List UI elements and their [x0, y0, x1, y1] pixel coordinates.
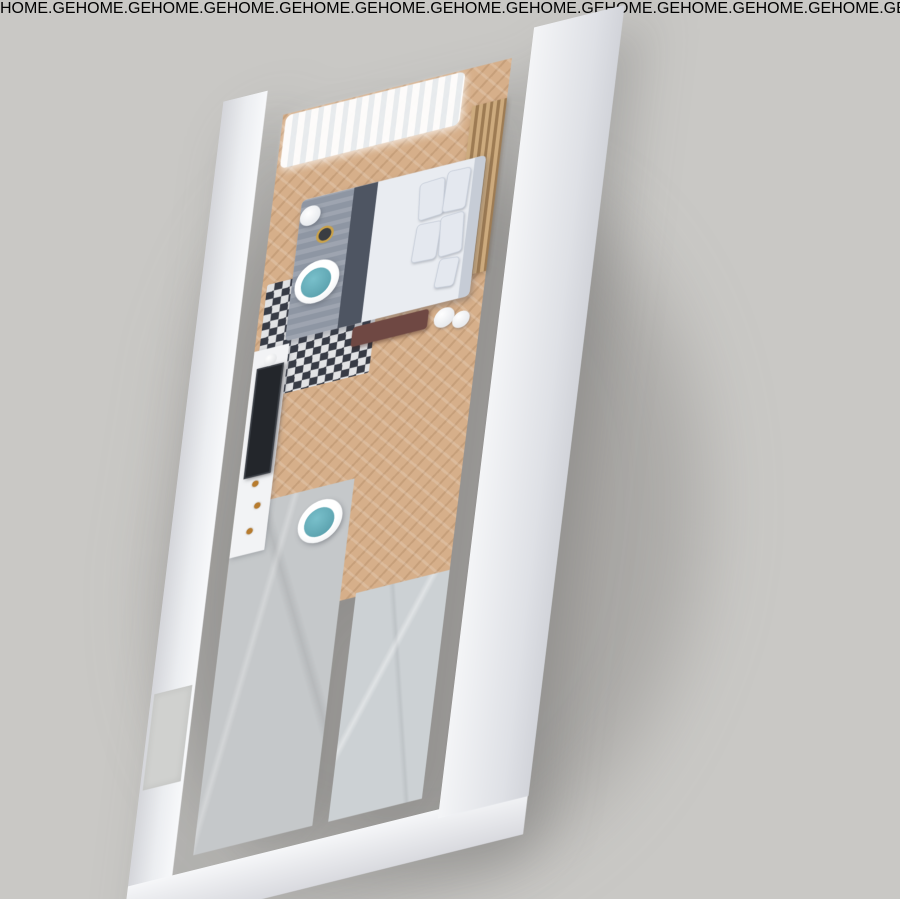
pillow [438, 210, 465, 258]
watermark-text: HOME.GE [831, 0, 900, 17]
pillow [442, 166, 472, 213]
apartment-unit [170, 33, 535, 880]
watermark-text: HOME.GE [378, 0, 454, 17]
pillow [433, 256, 460, 289]
watermark-text: HOME.GE [76, 0, 152, 17]
pillow [418, 176, 445, 221]
watermark-text: HOME.GE [0, 0, 76, 17]
watermark-text: HOME.GE [756, 0, 832, 17]
watermark-text: HOME.GE [227, 0, 303, 17]
watermark-layer: HOME.GEHOME.GEHOME.GEHOME.GEHOME.GEHOME.… [0, 0, 900, 18]
floor-plan-render: HOME.GEHOME.GEHOME.GEHOME.GEHOME.GEHOME.… [0, 0, 900, 899]
watermark-text: HOME.GE [302, 0, 378, 17]
watermark-text: HOME.GE [680, 0, 756, 17]
pillow [410, 220, 442, 264]
watermark-text: HOME.GE [453, 0, 529, 17]
bathroom-floor [328, 570, 449, 822]
watermark-text: HOME.GE [151, 0, 227, 17]
